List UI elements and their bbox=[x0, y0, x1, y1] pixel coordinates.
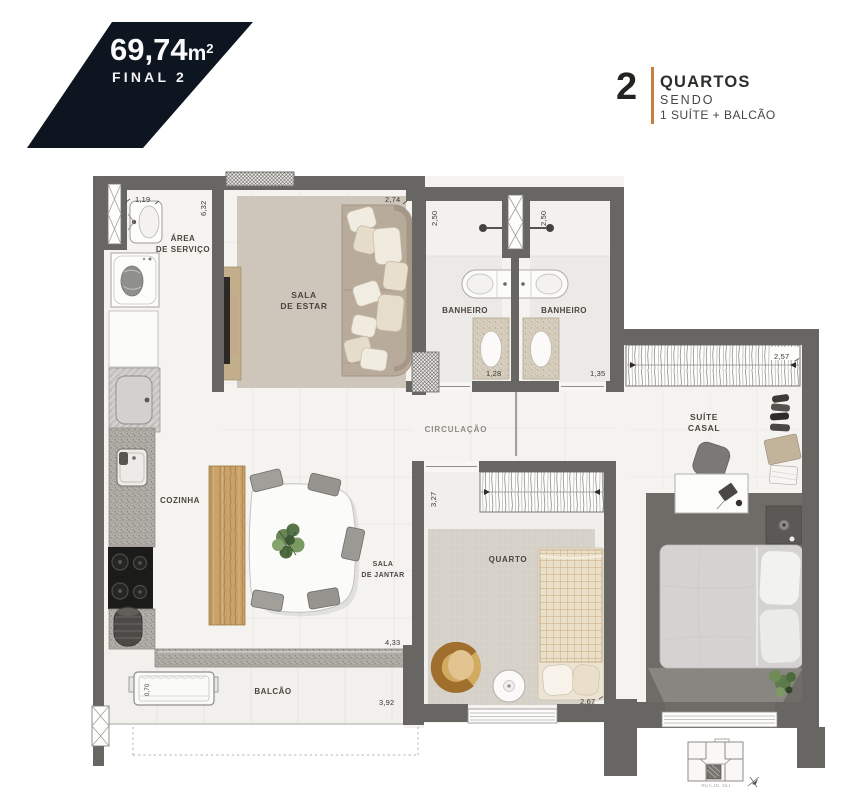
svg-text:DE JANTAR: DE JANTAR bbox=[361, 572, 404, 579]
svg-text:3,27: 3,27 bbox=[429, 492, 438, 507]
svg-text:SENDO: SENDO bbox=[660, 93, 714, 107]
svg-text:QUARTOS: QUARTOS bbox=[660, 73, 751, 91]
svg-text:BANHEIRO: BANHEIRO bbox=[541, 306, 587, 315]
svg-text:RUA JD. OLI: RUA JD. OLI bbox=[701, 783, 730, 788]
svg-text:2: 2 bbox=[616, 66, 637, 108]
svg-text:BALCÃO: BALCÃO bbox=[254, 687, 291, 696]
svg-text:CASAL: CASAL bbox=[688, 423, 720, 433]
svg-text:1 SUÍTE + BALCÃO: 1 SUÍTE + BALCÃO bbox=[660, 107, 776, 122]
svg-text:4,33: 4,33 bbox=[385, 638, 400, 647]
svg-text:SALA: SALA bbox=[373, 561, 394, 568]
svg-text:COZINHA: COZINHA bbox=[160, 496, 200, 505]
svg-text:SALA: SALA bbox=[291, 290, 317, 300]
svg-text:QUARTO: QUARTO bbox=[489, 555, 528, 564]
svg-text:DE SERVIÇO: DE SERVIÇO bbox=[156, 245, 210, 254]
svg-text:FINAL 2: FINAL 2 bbox=[112, 69, 187, 85]
svg-text:SUÍTE: SUÍTE bbox=[690, 412, 718, 422]
svg-text:BANHEIRO: BANHEIRO bbox=[442, 306, 488, 315]
svg-text:2,74: 2,74 bbox=[385, 195, 400, 204]
svg-text:2,50: 2,50 bbox=[430, 211, 439, 226]
svg-text:1,35: 1,35 bbox=[590, 369, 605, 378]
svg-text:3,92: 3,92 bbox=[379, 698, 394, 707]
svg-text:2,50: 2,50 bbox=[539, 211, 548, 226]
svg-text:0,70: 0,70 bbox=[145, 683, 151, 696]
svg-text:6,32: 6,32 bbox=[199, 201, 208, 216]
svg-text:DE ESTAR: DE ESTAR bbox=[280, 301, 327, 311]
svg-text:2,67: 2,67 bbox=[580, 697, 595, 706]
svg-text:2,57: 2,57 bbox=[774, 352, 789, 361]
svg-text:1,19: 1,19 bbox=[135, 195, 150, 204]
svg-text:1,28: 1,28 bbox=[486, 369, 501, 378]
svg-text:CIRCULAÇÃO: CIRCULAÇÃO bbox=[425, 425, 488, 434]
svg-text:ÁREA: ÁREA bbox=[171, 234, 196, 243]
